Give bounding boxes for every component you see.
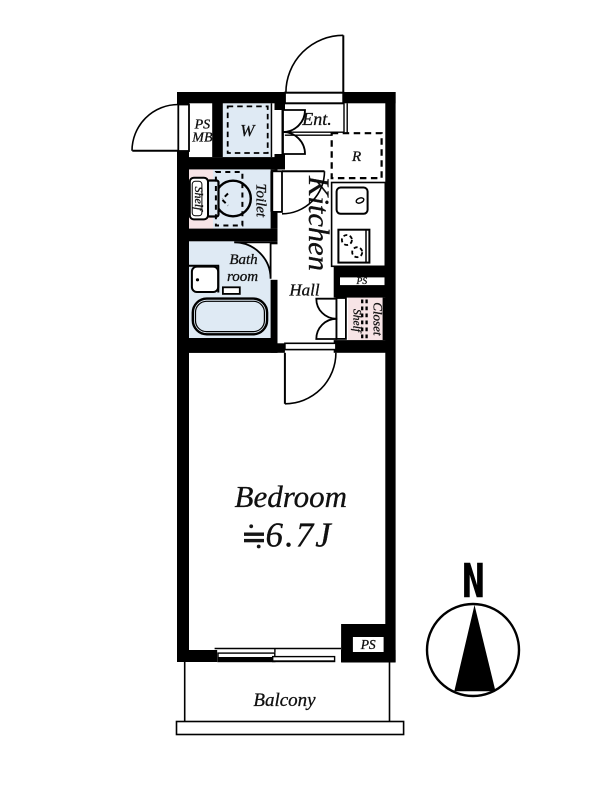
svg-text:Hall: Hall: [288, 281, 320, 300]
svg-text:Bedroom: Bedroom: [235, 479, 348, 514]
svg-text:6.7J: 6.7J: [266, 516, 333, 555]
svg-text:PS: PS: [356, 277, 368, 287]
svg-text:Shelf: Shelf: [351, 309, 363, 334]
svg-text:Bath: Bath: [229, 252, 257, 268]
svg-text:R: R: [351, 149, 361, 165]
svg-text:Balcony: Balcony: [253, 690, 316, 711]
svg-text:Kitchen: Kitchen: [302, 175, 335, 271]
svg-text:W: W: [240, 121, 256, 140]
svg-text:room: room: [227, 269, 258, 285]
svg-text:PS: PS: [360, 637, 376, 652]
svg-text:Ent.: Ent.: [301, 109, 332, 129]
svg-text:MB: MB: [191, 131, 213, 146]
svg-text:Toilet: Toilet: [252, 183, 268, 217]
svg-text:Closet: Closet: [371, 302, 386, 336]
svg-text:Shelf: Shelf: [192, 187, 206, 213]
